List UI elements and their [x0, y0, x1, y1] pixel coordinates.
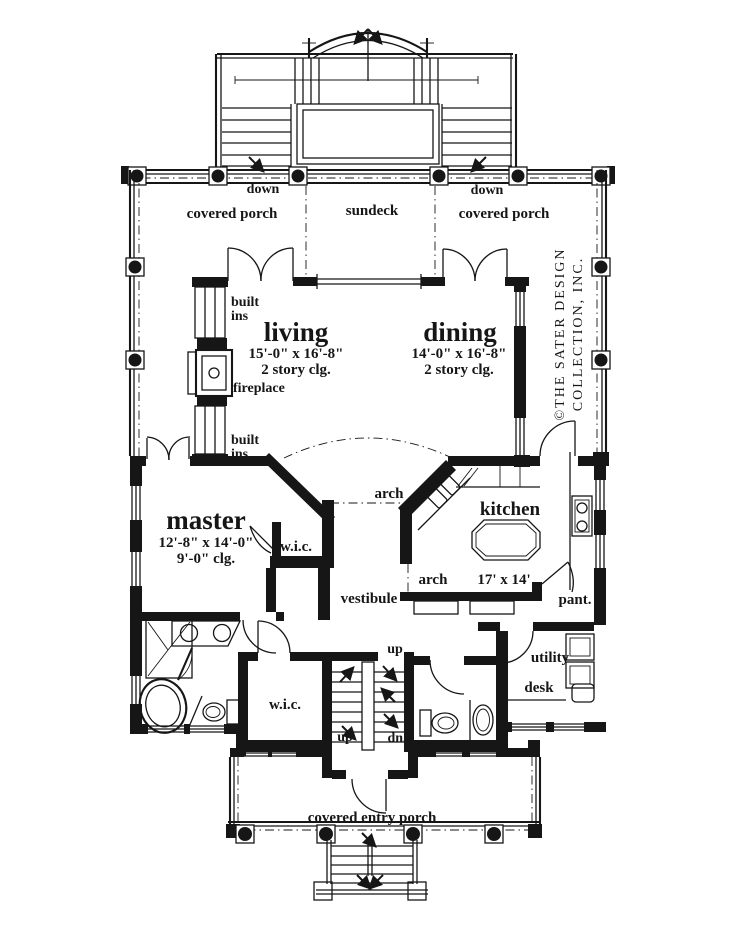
desk-chair [572, 684, 594, 702]
right-deck-stairs [442, 104, 512, 170]
range [572, 496, 592, 536]
label-up-hall: up [387, 642, 403, 657]
french-doors-left [228, 248, 293, 281]
label-down-left: down [247, 182, 280, 197]
built-ins-lower-cabinet [192, 396, 228, 466]
fireplace-box [188, 350, 232, 396]
label-built-ins-upper-2: ins [231, 309, 249, 324]
label-master-dims: 12'-8" x 14'-0" [159, 535, 254, 551]
label-sundeck: sundeck [346, 203, 399, 219]
label-dining-dims: 14'-0" x 16'-8" [412, 346, 507, 362]
kitchen-island [472, 520, 540, 560]
washer-dryer [566, 634, 594, 688]
label-covered-porch-left: covered porch [187, 206, 278, 222]
built-ins-upper-cabinet [195, 278, 227, 350]
toilet-master [203, 700, 239, 724]
label-built-ins-lower-2: ins [231, 447, 249, 462]
copyright: ©THE SATER DESIGN COLLECTION, INC. [553, 248, 586, 421]
label-built-ins-lower-1: built [231, 433, 259, 448]
master-suite [130, 437, 334, 756]
gallery-arch [262, 438, 452, 524]
master-french-doors [147, 437, 190, 460]
powder-room [414, 656, 508, 752]
label-down-right: down [471, 183, 504, 198]
label-up-entry: up [337, 730, 353, 745]
label-wic-master: w.i.c. [280, 539, 312, 555]
entry-door [352, 779, 386, 813]
label-living: living [264, 317, 329, 347]
label-dining-clg: 2 story clg. [424, 362, 494, 378]
sundeck-stairs [216, 29, 516, 170]
label-kitchen-dims: 17' x 14' [477, 572, 530, 588]
label-desk: desk [524, 680, 554, 696]
powder-sink [470, 700, 493, 744]
label-living-clg: 2 story clg. [261, 362, 331, 378]
label-kitchen: kitchen [480, 499, 541, 520]
label-master: master [166, 505, 245, 535]
label-vestibule: vestibule [341, 591, 398, 607]
label-dining: dining [423, 317, 497, 347]
floor-plan: down down covered porch sundeck covered … [0, 0, 750, 927]
label-covered-entry-porch: covered entry porch [308, 810, 437, 826]
vanity [172, 621, 240, 646]
label-wic-hall: w.i.c. [269, 697, 301, 713]
label-built-ins-upper-1: built [231, 295, 259, 310]
left-deck-stairs [222, 104, 291, 170]
label-master-clg: 9'-0" clg. [177, 551, 236, 567]
label-living-dims: 15'-0" x 16'-8" [249, 346, 344, 362]
label-pantry: pant. [559, 592, 592, 608]
label-dn: dn. [387, 731, 406, 746]
shower [146, 620, 192, 680]
copyright-line-2: COLLECTION, INC. [571, 257, 586, 412]
label-fireplace: fireplace [233, 381, 285, 396]
toilet-powder [420, 710, 458, 736]
french-doors-right [443, 249, 507, 281]
floor-plan-drawing: down down covered porch sundeck covered … [0, 0, 750, 927]
label-utility: utility [531, 650, 570, 666]
label-covered-porch-right: covered porch [459, 206, 550, 222]
label-arch-vestibule: arch [375, 486, 405, 502]
copyright-line-1: ©THE SATER DESIGN [553, 248, 568, 421]
label-arch-kitchen: arch [419, 572, 449, 588]
hall-wic [238, 621, 332, 752]
